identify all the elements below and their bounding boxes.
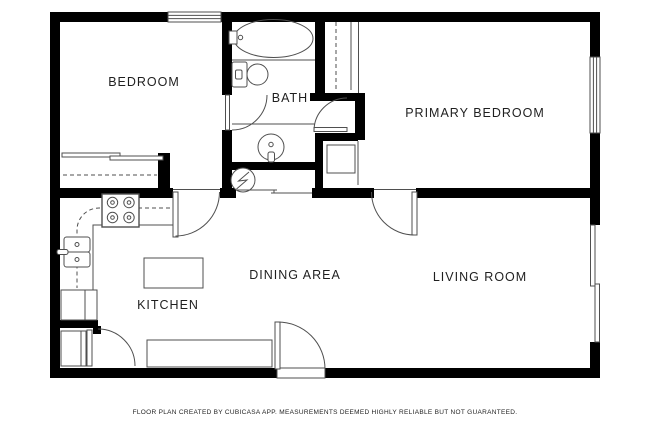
window-primary-bedroom [590,57,600,133]
kitchen-lower-cabinet [61,290,97,320]
label-kitchen: KITCHEN [137,298,199,312]
label-bedroom: BEDROOM [108,75,180,89]
wall-vestibule-right [355,93,365,140]
dining-side-cabinet [147,340,272,367]
label-bath: BATH [272,91,308,105]
entry-door [275,322,325,378]
wall-kitchen-stub [50,320,98,328]
sliding-glass-door [591,225,600,342]
wall-right-upper [590,22,600,57]
bedroom-closet [62,153,163,175]
label-dining-area: DINING AREA [249,268,341,282]
bedroom-door [173,190,220,238]
kitchen-sink [57,237,90,267]
wall-top-left [50,12,168,22]
floor-plan-drawing: BEDROOM BATH PRIMARY BEDROOM KITCHEN DIN… [0,0,650,433]
stove-cooktop [102,194,139,227]
label-primary-bedroom: PRIMARY BEDROOM [405,106,545,120]
toilet [232,62,268,87]
wall-linen-closet-top [315,133,358,141]
wall-bath-right [315,22,325,101]
primary-bedroom-door [372,190,418,236]
bath-door [226,95,268,130]
wall-right-lower [590,342,600,378]
wall-bath-left-lower [222,130,232,188]
wall-divider-c [312,188,374,198]
floor-plan-canvas: BEDROOM BATH PRIMARY BEDROOM KITCHEN DIN… [0,0,650,433]
wall-top-right [221,12,600,22]
wall-right-middle [590,133,600,225]
linen-closet [327,141,358,185]
kitchen-island [144,258,203,288]
label-living-room: LIVING ROOM [433,270,527,284]
footer-disclaimer: FLOOR PLAN CREATED BY CUBICASA APP. MEAS… [133,409,518,416]
window-bedroom [168,12,221,22]
kitchen-nook-cabinet [61,331,86,366]
water-heater [231,168,255,192]
bathtub [229,20,315,61]
wall-divider-b [220,188,236,198]
wall-under-vanity [222,162,318,170]
wall-nook-hinge-post [93,326,101,334]
vestibule-door [314,98,347,132]
bathroom-sink [232,124,315,162]
wall-divider-d [416,188,600,198]
primary-bedroom-closet [336,22,359,93]
kitchen-nook-door [87,329,135,366]
wall-bottom-right [325,368,600,378]
wall-bottom-left [50,368,277,378]
